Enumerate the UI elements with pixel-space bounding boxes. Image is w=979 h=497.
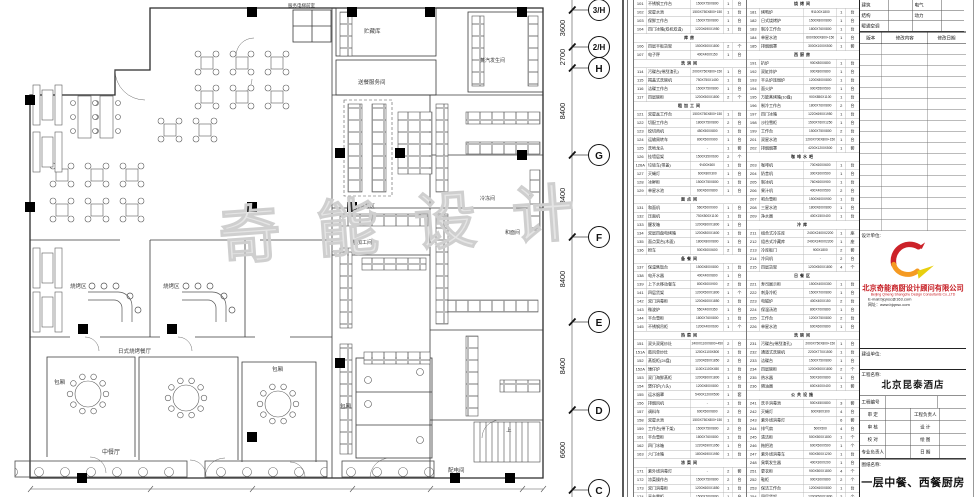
dim-2700: 2700 — [558, 49, 567, 66]
schedule-row: 115揭盖式洗碗机750X750X14001台 — [634, 77, 746, 86]
schedule-row: 152蒸饭柜(24盘)1200X650X18502台 — [634, 357, 746, 366]
schedule-row: 182日式烧烤炉1500X800X8001台 — [747, 17, 859, 26]
schedule-section-row: 西厨房 — [747, 51, 859, 60]
schedule-row: 208三星水池1800X600X8001台 — [747, 204, 859, 213]
schedule-row: 136粉车500X500X6002台 — [634, 247, 746, 256]
schedule-row: 235热水器500X300X8001台 — [747, 374, 859, 383]
revision-empty-row — [860, 220, 966, 231]
schedule-row: 245清洁柜500X500X18001个 — [747, 434, 859, 443]
revision-empty-row — [860, 176, 966, 187]
schedule-row: 241洗手消毒池500X450X8003套 — [747, 400, 859, 409]
schedule-row: 209净水器400X150X4001台 — [747, 213, 859, 222]
schedule-row: 185排烟烟罩3000X1000X5001套 — [747, 43, 859, 52]
label-elevator: 服务电梯前室 — [288, 2, 315, 9]
schedule-row: 159工作台(带下架)1500X750X8002台 — [634, 425, 746, 434]
schedule-row: 116洁碟工作台1500X750X8001台 — [634, 85, 746, 94]
grid-bubble-g: G — [595, 151, 603, 162]
revision-empty-row — [860, 99, 966, 110]
schedule-row: 192双缸炸炉900X800X8001台 — [747, 68, 859, 77]
revision-empty-row — [860, 88, 966, 99]
revision-content-label: 修改内容 — [882, 33, 928, 44]
sheet-right-border — [973, 0, 974, 497]
schedule-row: 221寿司展示柜1500X400X3001台 — [747, 281, 859, 290]
schedule-row: 103保鲜工作台1500X750X8001台 — [634, 17, 746, 26]
schedule-row: 151A鼓风单炒灶1200X1100X8001台 — [634, 349, 746, 358]
revision-empty-row — [860, 66, 966, 77]
schedule-row: 156排烟风机-1台 — [634, 400, 746, 409]
schedule-row: 162四门冰箱1220X690X19501台 — [634, 442, 746, 451]
bottom-dimension-line — [28, 486, 546, 492]
sign-proof-label: 校 对 — [860, 434, 886, 447]
sign-chief-label: 工程负责人 — [911, 409, 940, 422]
schedule-section-row: 公共设施 — [747, 391, 859, 400]
schedule-row: 215四层货架1200X500X18004个 — [747, 264, 859, 273]
label-stairs-up: 上 — [506, 426, 512, 434]
schedule-section-row: 凉菜间 — [634, 459, 746, 468]
schedule-row: 251更衣柜900X500X18004个 — [747, 468, 859, 477]
cad-sheet: 服务电梯前室 贮藏库 送餐服务间 蒸汽发生间 备餐区 冷冻间 和面间 粗加工间 … — [0, 0, 979, 497]
schedule-row: 247紫外线消毒车900X500X12001台 — [747, 451, 859, 460]
schedule-section-row: 粗加工间 — [634, 102, 746, 111]
dim-8400-4: 8400 — [558, 358, 567, 375]
project-number-row: 工程编号 — [860, 396, 966, 409]
label-box-1: 包厢 — [54, 378, 66, 386]
schedule-row: 131和面机560X500X9001台 — [634, 204, 746, 213]
schedule-row: 128冰鲜柜1500X750X8001台 — [634, 179, 746, 188]
grid-bubble-2h: 2/H — [593, 43, 606, 52]
discipline-elec-label: 电气 — [913, 0, 942, 11]
company-logo — [886, 238, 941, 282]
schedule-row: 204奶昔机300X300X5001台 — [747, 170, 859, 179]
schedule-row: 236隔油器600X400X4001套 — [747, 383, 859, 392]
schedule-row: 123绞切肉机450X500X8001台 — [634, 128, 746, 137]
title-block: 建筑 电气 结构 动力 暖通空调 版本 修改内容 修改日期 设计单位: — [859, 0, 966, 497]
equipment-schedule-left-column: 101不锈钢工作台1500X750X8001台102双星水池1500X750X8… — [633, 0, 747, 497]
grid-bubble-d: D — [595, 406, 602, 417]
revision-empty-row — [860, 55, 966, 66]
sign-approve-label: 审 定 — [860, 409, 886, 422]
revision-date-label: 修改日期 — [928, 33, 965, 44]
schedule-section-row: 咖啡水吧 — [747, 153, 859, 162]
schedule-row: 244排气扇500X5004台 — [747, 425, 859, 434]
schedule-row: 191扒炉900X800X8001台 — [747, 60, 859, 69]
label-storage: 贮藏库 — [364, 27, 381, 35]
schedule-row: 195万能蒸烤箱(10盘)900X850X11001台 — [747, 94, 859, 103]
equipment-schedule-right-column: 烧烤间181烤鸭炉Ф1100X18001台182日式烧烤炉1500X800X80… — [746, 0, 860, 497]
schedule-row: 137保温售饭台1500X800X8001台 — [634, 264, 746, 273]
dim-8400-2: 8400 — [558, 188, 567, 205]
schedule-section-row: 备餐间 — [634, 255, 746, 264]
dim-6600: 6600 — [558, 442, 567, 459]
label-bbq-2: 烧烤区 — [163, 282, 180, 290]
dining-tables — [33, 51, 299, 424]
schedule-row: 126A垃圾车(带盖)Ф400X6001台 — [634, 162, 746, 171]
schedule-row: 206果汁机400X400X5002台 — [747, 187, 859, 196]
label-rough: 粗加工间 — [352, 239, 372, 246]
schedule-row: 124运输周转车800X500X9001台 — [634, 136, 746, 145]
label-service: 送餐服务间 — [358, 78, 386, 86]
sign-design-label: 设 计 — [911, 421, 940, 434]
schedule-row: 163六门冰箱1800X690X19501台 — [634, 451, 746, 460]
schedule-row: 214冷风机-2台 — [747, 255, 859, 264]
revision-empty-row — [860, 143, 966, 154]
schedule-row: 143微波炉550X400X3501台 — [634, 306, 746, 315]
schedule-section-row: 日餐区 — [747, 272, 859, 281]
project-name-section: 工程名称: 北京昆泰酒店 — [860, 370, 966, 396]
design-unit-label: 设计单位: — [862, 232, 881, 239]
schedule-row: 138电开水器400X400X8001台 — [634, 272, 746, 281]
schedule-row: 129单星水池600X600X8001台 — [634, 187, 746, 196]
discipline-power-label: 动力 — [913, 11, 942, 22]
schedule-section-row: 洗消间 — [634, 60, 746, 69]
schedule-row: 133醒发箱1200X800X18001台 — [634, 221, 746, 230]
grid-dimension-column: 3/H 2/H H G F E D C 3600 2700 8400 8400 … — [558, 0, 628, 497]
label-box-2: 包厢 — [272, 365, 284, 373]
sign-check-label: 审 核 — [860, 421, 886, 434]
dim-8400-1: 8400 — [558, 103, 567, 120]
revision-empty-row — [860, 165, 966, 176]
grid-bubble-f: F — [596, 233, 602, 244]
schedule-row: 101不锈钢工作台1500X750X8001台 — [634, 0, 746, 9]
schedule-row: 151双头双尾炒灶2400X1100X800+4502台 — [634, 340, 746, 349]
schedule-row: 193平头炉连焗炉1200X800X8001台 — [747, 77, 859, 86]
revision-table-header: 版本 修改内容 修改日期 — [860, 33, 966, 45]
schedule-section-row: 热菜间 — [634, 332, 746, 341]
company-name-cn: 北京奇能商厨设计顾问有限公司 — [860, 285, 966, 294]
schedule-row: 135面点案台(木面)1800X800X8001台 — [634, 238, 746, 247]
revision-empty-row — [860, 121, 966, 132]
label-steam: 蒸汽发生间 — [480, 57, 505, 64]
discipline-signoff-table: 建筑 电气 结构 动力 暖通空调 — [860, 0, 966, 33]
schedule-row: 102双星水池1500X750X800+1501台 — [634, 9, 746, 18]
label-cold: 冷冻间 — [480, 195, 495, 202]
schedule-row: 104四门冰箱(双机双温)1220X690X19501台 — [634, 26, 746, 35]
client-label: 建设单位: — [862, 352, 881, 357]
sign-draw-label: 绘 图 — [911, 434, 940, 447]
schedule-row: 197四门冰箱1220X690X19501台 — [747, 111, 859, 120]
grid-bubble-e: E — [596, 318, 603, 329]
schedule-row: 134双层四盘电烤箱1200X800X16001台 — [634, 230, 746, 239]
schedule-row: 183制冷工作台1800X760X8001台 — [747, 26, 859, 35]
schedule-row: 153双门海鲜蒸柜1200X800X18001台 — [634, 374, 746, 383]
schedule-row: 117四层碗柜1200X500X18002个 — [634, 94, 746, 103]
schedule-row: 106四层平板货架1500X500X18002个 — [634, 43, 746, 52]
label-electric: 配电间 — [448, 466, 465, 474]
schedule-section-row: 洗碗间 — [747, 332, 859, 341]
grid-bubble-h: H — [595, 64, 602, 75]
label-dough: 和面间 — [505, 229, 520, 236]
schedule-row: 172凉菜操作台1500X750X8002台 — [634, 476, 746, 485]
schedule-row: 252鞋柜900X300X8002个 — [747, 476, 859, 485]
schedule-row: 243紫外线消毒灯-6套 — [747, 417, 859, 426]
schedule-row: 121双星盆工作台1500X750X800+1501台 — [634, 111, 746, 120]
schedule-row: 173双门消毒柜1200X600X18501台 — [634, 485, 746, 494]
bbq-counters — [88, 283, 235, 322]
schedule-row: 181烤鸭炉Ф1100X18001台 — [747, 9, 859, 18]
schedule-row: 201双星水池1200X700X800+1501台 — [747, 136, 859, 145]
client-section: 建设单位: — [860, 349, 966, 370]
schedule-row: 155运水烟罩5400X1200X5001套 — [634, 391, 746, 400]
revision-empty-row — [860, 209, 966, 220]
schedule-row: 142双门消毒柜1200X600X18501台 — [634, 298, 746, 307]
floor-plan-drawing: 服务电梯前室 贮藏库 送餐服务间 蒸汽发生间 备餐区 冷冻间 和面间 粗加工间 … — [0, 0, 632, 497]
schedule-row: 207吧台雪柜1500X600X9001台 — [747, 196, 859, 205]
revision-empty-row — [860, 77, 966, 88]
revision-empty-row — [860, 198, 966, 209]
schedule-row: 253保洁工作台1200X600X8001台 — [747, 485, 859, 494]
schedule-row: 127灭蝇灯600X80X3001台 — [634, 170, 746, 179]
schedule-row: 132压面机750X500X11001台 — [634, 213, 746, 222]
schedule-row: 126挂墙层架1500X350X6002个 — [634, 153, 746, 162]
schedule-row: 158双星水池1500X750X800+1501台 — [634, 417, 746, 426]
project-name: 北京昆泰酒店 — [860, 378, 966, 392]
company-website: 网址：www.bjqnsc.com — [860, 302, 966, 308]
revision-empty-row — [860, 132, 966, 143]
revision-empty-row — [860, 44, 966, 55]
schedule-row: 196制冷工作台1800X760X8002台 — [747, 102, 859, 111]
schedule-row: 125洗地龙头-1套 — [634, 145, 746, 154]
discipline-arch-label: 建筑 — [860, 0, 889, 11]
sign-date-label: 日 期 — [911, 446, 940, 459]
grid-bubble-c: C — [595, 486, 602, 497]
revision-empty-rows — [860, 44, 966, 231]
schedule-row: 205制冰机760X600X9001台 — [747, 179, 859, 188]
schedule-row: 232通道式洗碗机2200X770X15001台 — [747, 349, 859, 358]
schedule-row: 122切配工作台1800X750X8002台 — [634, 119, 746, 128]
dim-3600: 3600 — [558, 20, 567, 37]
schedule-row: 174平台雪柜1500X760X8001台 — [634, 493, 746, 497]
project-number-label: 工程编号 — [860, 396, 886, 408]
schedule-row: 184单星水池600X600X800+1501台 — [747, 34, 859, 43]
schedule-row: 152A矮仔炉1100X1100X4501台 — [634, 366, 746, 375]
revision-version-label: 版本 — [860, 33, 882, 44]
label-bbq-1: 烧烤区 — [70, 282, 87, 290]
schedule-row: 246拖把池600X500X5001个 — [747, 442, 859, 451]
schedule-row: 161平台雪柜1800X760X8001台 — [634, 434, 746, 443]
schedule-row: 203咖啡机700X600X6001台 — [747, 162, 859, 171]
schedule-section-row: 库房 — [634, 34, 746, 43]
discipline-hvac-label: 暖通空调 — [860, 21, 889, 32]
revision-empty-row — [860, 110, 966, 121]
schedule-row: 224保温汤池800X700X8001台 — [747, 306, 859, 315]
sheet-name-label: 图纸名称: — [860, 460, 966, 468]
schedule-row: 254四层货架1200X500X18002个 — [747, 493, 859, 497]
schedule-row: 242灭蝇灯600X80X3004台 — [747, 408, 859, 417]
schedule-section-row: 烧烤间 — [747, 0, 859, 9]
schedule-row: 211组合式冷冻库2400X2400X22001座 — [747, 230, 859, 239]
schedule-row: 213冷库板门900X18002套 — [747, 247, 859, 256]
schedule-section-row: 面点间 — [634, 196, 746, 205]
schedule-row: 107电子秤400X400X1501台 — [634, 51, 746, 60]
schedule-row: 157调料车600X500X8002台 — [634, 408, 746, 417]
sign-major-chief-label: 专业负责人 — [860, 446, 886, 459]
schedule-row: 171紫外线消毒灯-2套 — [634, 468, 746, 477]
schedule-row: 198沙拉雪柜1500X760X12501台 — [747, 119, 859, 128]
schedule-row: 144平台雪柜1800X760X8001台 — [634, 315, 746, 324]
schedule-row: 199工作台1500X750X8002台 — [747, 128, 859, 137]
label-chinese-hall: 中餐厅 — [102, 448, 120, 456]
design-unit-section: 设计单位: 北京奇能商厨设计顾问有限公司 Beijing Qineng Shan… — [860, 231, 966, 349]
schedule-row: 233洁碟台1500X750X8001台 — [747, 357, 859, 366]
signature-table: 审 定 工程负责人 审 核 设 计 校 对 绘 图 专业负责人 日 期 — [860, 409, 966, 460]
schedule-row: 225工作台1200X750X8002台 — [747, 315, 859, 324]
schedule-row: 222刺身冷柜1500X700X8001台 — [747, 289, 859, 298]
schedule-row: 234四层碗柜1200X500X18002个 — [747, 366, 859, 375]
discipline-struct-label: 结构 — [860, 11, 889, 22]
label-box-3: 包厢 — [340, 402, 352, 410]
schedule-row: 212组合式冷藏库2400X2400X22001座 — [747, 238, 859, 247]
dim-8400-3: 8400 — [558, 271, 567, 288]
schedule-row: 226单星水池600X600X8001台 — [747, 323, 859, 332]
revision-empty-row — [860, 154, 966, 165]
schedule-row: 202排烟烟罩4200X1200X5001套 — [747, 145, 859, 154]
schedule-row: 139上下水移动餐车800X500X9002台 — [634, 281, 746, 290]
schedule-row: 231污碟台(带刮渣孔)2000X750X800+1501台 — [747, 340, 859, 349]
schedule-row: 194面火炉900X550X5001台 — [747, 85, 859, 94]
schedule-row: 154煲仔炉(六头)1200X800X8001台 — [634, 383, 746, 392]
grid-bubble-3h: 3/H — [593, 6, 606, 15]
sheet-name-section: 图纸名称: 一层中餐、西餐厨房 — [860, 460, 966, 497]
schedule-row: 248臭氧发生器400X300X2001台 — [747, 459, 859, 468]
label-prep: 备餐区 — [360, 203, 375, 210]
schedule-section-row: 冷库 — [747, 221, 859, 230]
revision-empty-row — [860, 187, 966, 198]
project-name-label: 工程名称: — [860, 370, 966, 378]
schedule-row: 141四层货架1200X500X18001个 — [634, 289, 746, 298]
sheet-name: 一层中餐、西餐厨房 — [860, 474, 966, 490]
label-japanese: 日式烧烤餐厅 — [118, 347, 152, 355]
schedule-row: 145不锈钢吊柜1200X400X6001个 — [634, 323, 746, 332]
schedule-row: 223电磁炉400X400X1502台 — [747, 298, 859, 307]
schedule-row: 114污碟台(带刮渣孔)2000X750X800+1501台 — [634, 68, 746, 77]
